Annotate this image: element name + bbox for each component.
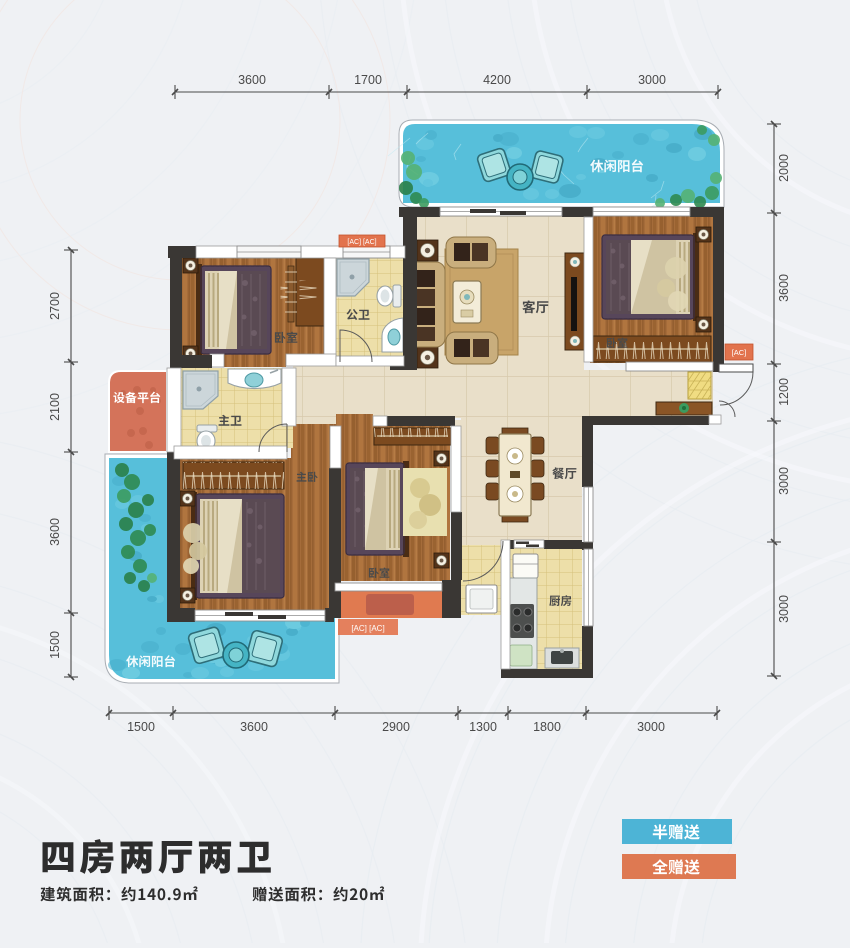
svg-text:[AC] [AC]: [AC] [AC] <box>351 624 384 633</box>
svg-text:3600: 3600 <box>240 720 268 734</box>
svg-text:2100: 2100 <box>48 393 62 421</box>
svg-text:1300: 1300 <box>469 720 497 734</box>
svg-text:2900: 2900 <box>382 720 410 734</box>
svg-text:[AC] [AC]: [AC] [AC] <box>347 239 376 246</box>
svg-text:1800: 1800 <box>533 720 561 734</box>
svg-text:1500: 1500 <box>127 720 155 734</box>
svg-text:3000: 3000 <box>777 595 791 623</box>
svg-text:3600: 3600 <box>777 274 791 302</box>
svg-text:[AC]: [AC] <box>732 348 747 357</box>
svg-text:3000: 3000 <box>637 720 665 734</box>
svg-text:1500: 1500 <box>48 631 62 659</box>
svg-text:1700: 1700 <box>354 73 382 87</box>
svg-text:3000: 3000 <box>777 467 791 495</box>
svg-text:2000: 2000 <box>777 154 791 182</box>
svg-text:3600: 3600 <box>238 73 266 87</box>
svg-text:3600: 3600 <box>48 518 62 546</box>
svg-text:3000: 3000 <box>638 73 666 87</box>
svg-text:2700: 2700 <box>48 292 62 320</box>
svg-text:1200: 1200 <box>777 378 791 406</box>
svg-text:4200: 4200 <box>483 73 511 87</box>
